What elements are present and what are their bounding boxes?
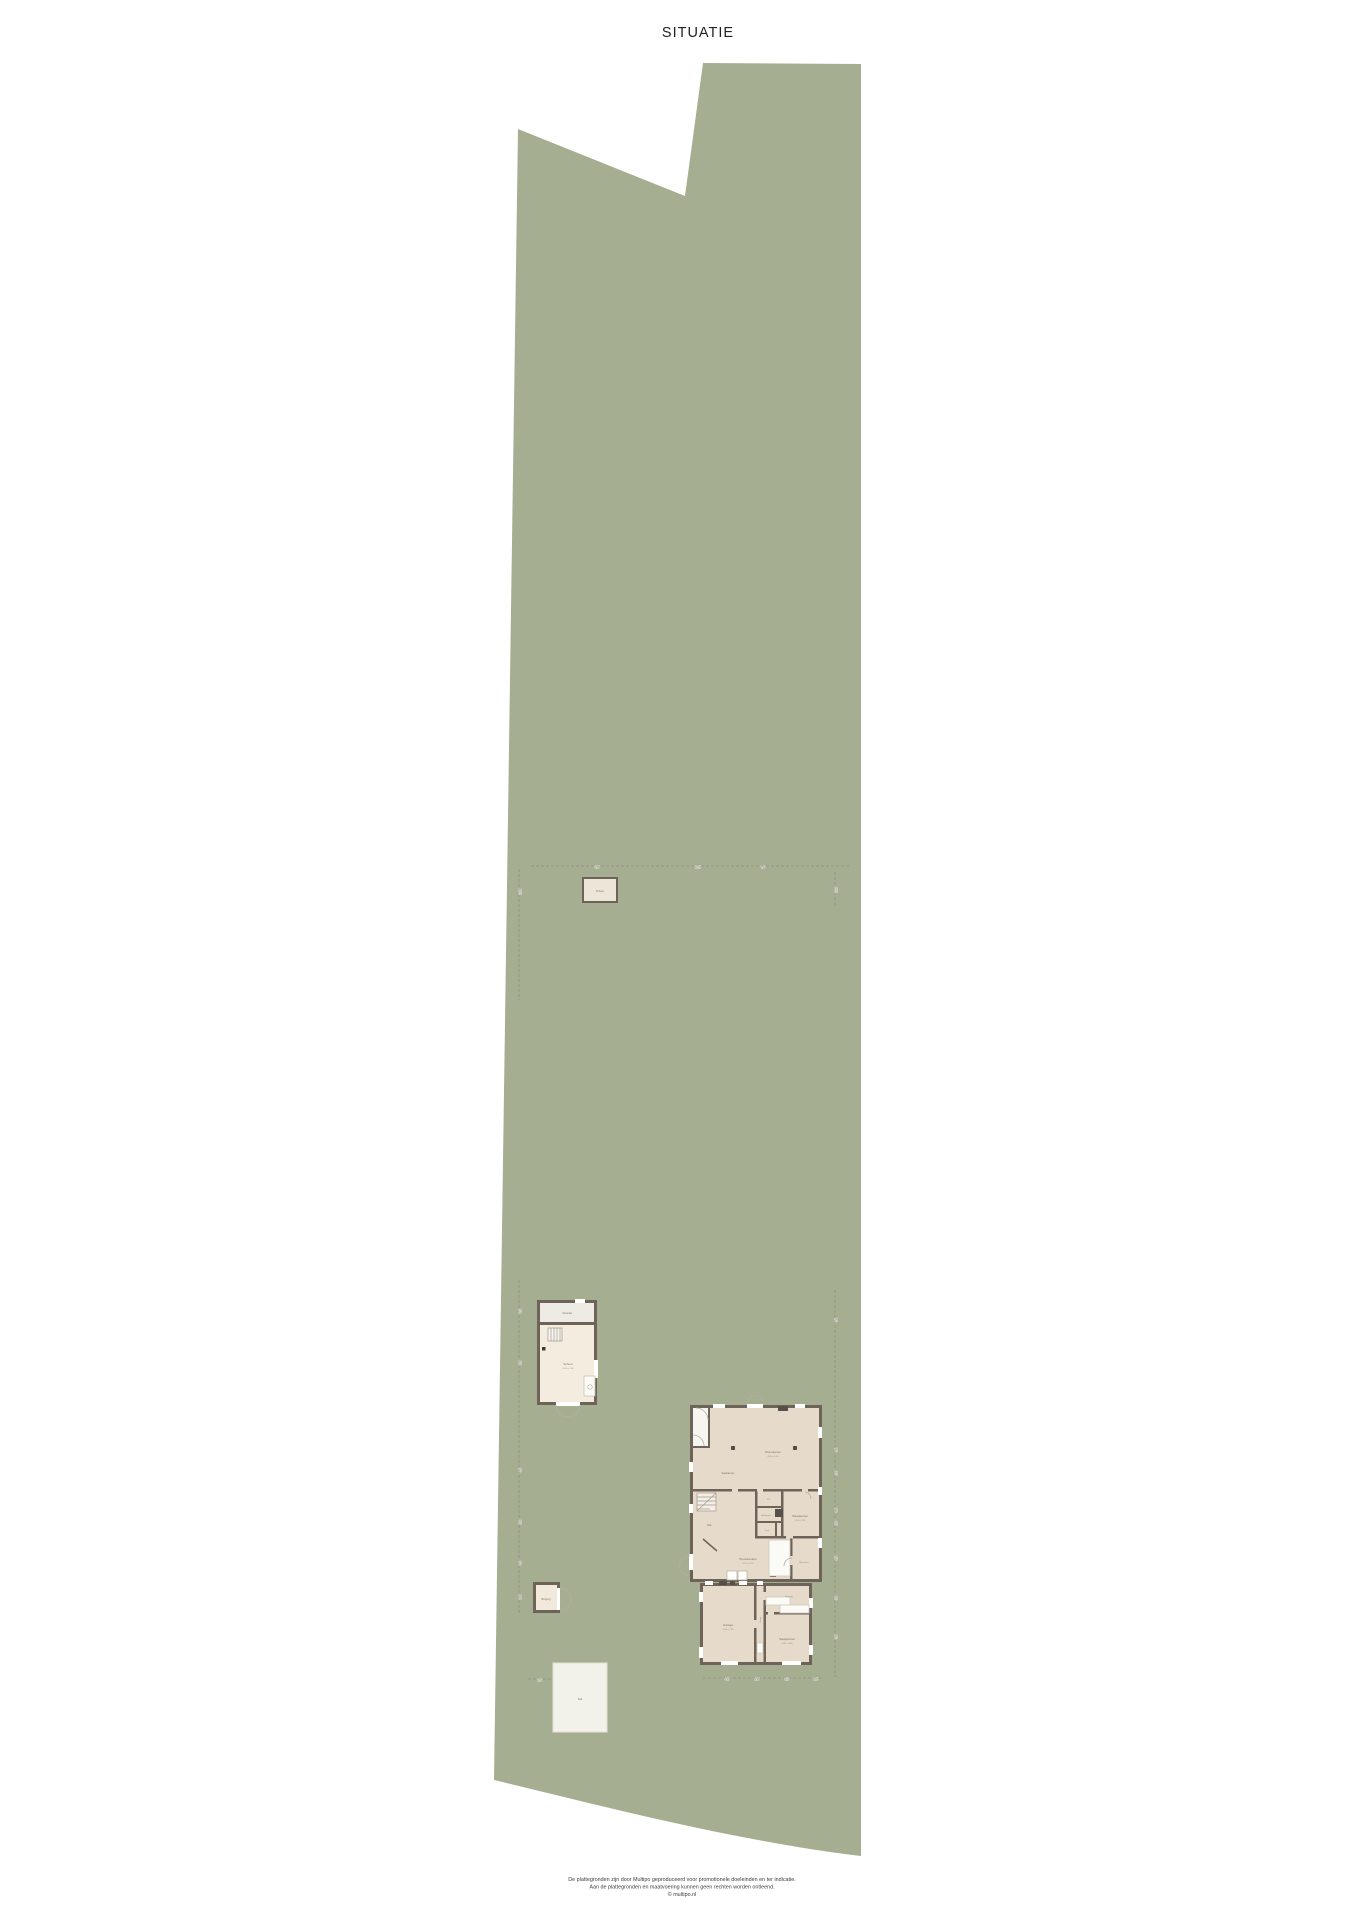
stairs-icon	[548, 1328, 562, 1341]
room-label-wc: WC	[767, 1499, 771, 1501]
page-title: SITUATIE	[662, 25, 734, 41]
room-label-badkamer: Badkamer	[761, 1514, 771, 1517]
appliance	[727, 1571, 737, 1580]
entry-room	[693, 1408, 708, 1446]
dimension-label: 11.25	[519, 888, 522, 894]
barn-stal: Stal	[553, 1663, 607, 1732]
room-size-garage: 5.00 x 7.30	[723, 1629, 735, 1631]
dimension-label: 8.25	[519, 1360, 522, 1365]
dimension-label: 3.60	[835, 1507, 838, 1512]
room-label-eetkamer: Eetkamer	[722, 1471, 735, 1475]
dimension-label: 2.95	[755, 1678, 760, 1681]
room-label-gang: Gang	[760, 1617, 762, 1623]
dimension-label: 1.30	[835, 1520, 838, 1525]
toilet-icon	[588, 1385, 592, 1389]
dimension-label: 2.80	[519, 1594, 522, 1599]
dimension-label: 11.20	[835, 886, 838, 892]
room-label-bijkeuken: Bijkeuken	[799, 1562, 809, 1564]
dimension-label: 4.60	[835, 1447, 838, 1452]
footer-line-1: De plattegronden zijn door Multipo gepro…	[568, 1877, 795, 1883]
veranda-label: Veranda	[562, 1311, 572, 1315]
dimension-label: 3.20	[785, 1678, 790, 1681]
dimension-label: 4.90	[519, 1467, 522, 1472]
garden-shed-size: 5.45 x 7.65	[563, 1368, 575, 1370]
cabinet	[757, 1643, 763, 1653]
room-label-slaapkamer-1: Slaapkamer	[792, 1514, 808, 1518]
room-size-slaapkamer-1: 3.55 x 3.95	[795, 1520, 807, 1522]
door-opening	[557, 1588, 560, 1610]
situatie-page: SITUATIE 6.55 10.15 8.90 11.25 2.10 8.25…	[0, 0, 1358, 1920]
room-label-woonkamer: Woonkamer	[765, 1450, 781, 1454]
counter	[766, 1597, 790, 1605]
room-label-hal: Hal	[707, 1523, 712, 1527]
room-size-woonkamer: 8.05 x 4.00	[768, 1456, 780, 1458]
garden-shed: Veranda Schuur 5.45 x 7.65	[537, 1299, 598, 1417]
dimension-label: 2.10	[519, 1308, 522, 1313]
room-label-slaapkamer-2: Slaapkamer	[779, 1637, 795, 1641]
dimension-label: 2.30	[835, 1470, 838, 1475]
dimension-label: 3.40	[519, 1560, 522, 1565]
kitchen-island	[769, 1540, 790, 1576]
room-label-woonkeuken: Woonkeuken	[739, 1557, 757, 1561]
dimension-label: 8.90	[761, 866, 766, 869]
post-marker	[542, 1347, 546, 1351]
dimension-label: 3.50	[835, 1555, 838, 1560]
footer-disclaimer: De plattegronden zijn door Multipo gepro…	[568, 1877, 795, 1898]
room-label-kast: Kast	[765, 1529, 770, 1532]
site-plan-canvas: SITUATIE 6.55 10.15 8.90 11.25 2.10 8.25…	[0, 0, 1358, 1920]
dimension-label: 5.20	[519, 1519, 522, 1524]
room-size-woonkeuken: 6.10 x 4.20	[743, 1563, 755, 1565]
barn-stal-label: Stal	[578, 1697, 583, 1701]
room-label-berging: Berging	[785, 1595, 793, 1598]
dimension-label: 10.15	[695, 866, 702, 869]
dimension-label: 4.00	[835, 1595, 838, 1600]
dimension-label: 4.50	[835, 1317, 838, 1322]
shed-north-label: Schuur	[596, 889, 604, 893]
dimension-label: 2.50	[538, 1679, 543, 1682]
window	[575, 1299, 585, 1303]
stairs-icon	[697, 1493, 716, 1511]
dimension-label: 4.47	[725, 1678, 730, 1681]
dimension-label: 6.55	[595, 866, 600, 869]
appliance	[738, 1571, 747, 1580]
dimension-label: 4.70	[835, 1634, 838, 1639]
shed-north: Schuur	[583, 878, 617, 902]
counter	[780, 1605, 809, 1613]
door-opening	[556, 1402, 580, 1406]
dimension-label: 2.87	[814, 1678, 819, 1681]
hut-label: Berging	[542, 1597, 551, 1601]
footer-line-2: Aan de plattegronden en maatvoering kunn…	[589, 1885, 774, 1891]
room-label-garage: Garage	[723, 1623, 733, 1627]
room-size-slaapkamer-2: 4.30 x 4.60	[782, 1643, 794, 1645]
main-house: Woonkamer 8.05 x 4.00 Eetkamer Hal WC Ba…	[679, 1396, 822, 1665]
garden-shed-label: Schuur	[563, 1362, 573, 1366]
door-opening	[594, 1360, 598, 1378]
footer-line-3: © multipo.nl	[668, 1891, 697, 1898]
